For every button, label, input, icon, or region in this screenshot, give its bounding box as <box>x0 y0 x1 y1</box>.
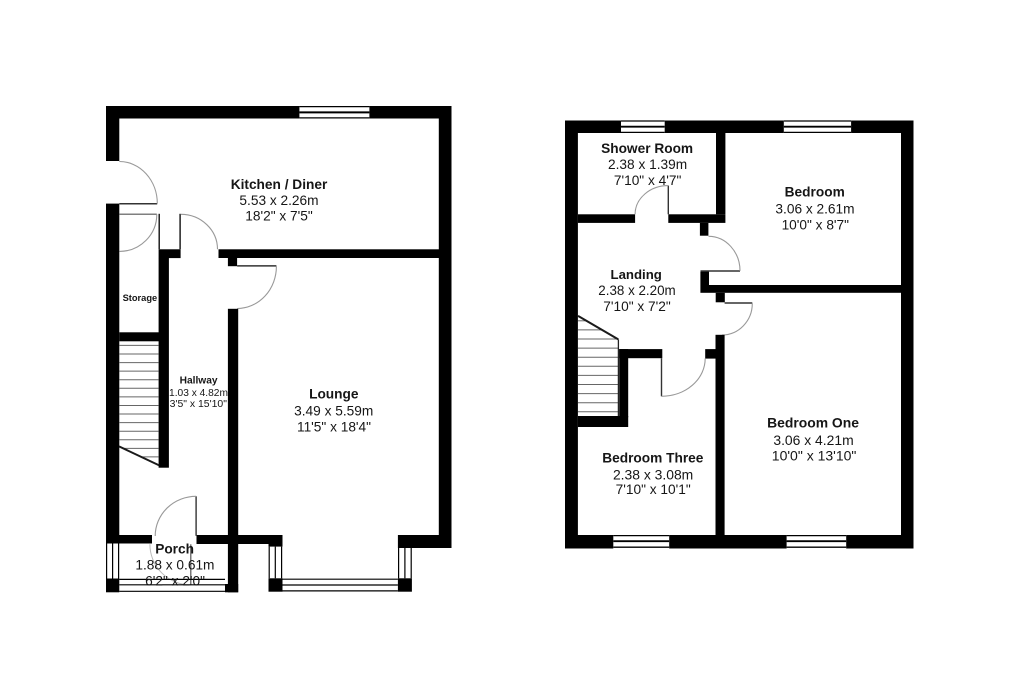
svg-text:10'0" x 8'7": 10'0" x 8'7" <box>782 217 850 232</box>
svg-text:2.38 x 1.39m: 2.38 x 1.39m <box>608 157 687 172</box>
svg-text:1.03 x 4.82m: 1.03 x 4.82m <box>169 388 228 399</box>
svg-text:Shower Room: Shower Room <box>601 141 693 156</box>
svg-text:2.38 x 3.08m: 2.38 x 3.08m <box>613 467 693 483</box>
svg-text:Porch: Porch <box>155 542 194 557</box>
svg-text:Hallway: Hallway <box>180 376 218 387</box>
svg-text:Bedroom Three: Bedroom Three <box>602 451 704 466</box>
svg-text:3.06 x 4.21m: 3.06 x 4.21m <box>773 432 853 448</box>
svg-text:7'10" x 10'1": 7'10" x 10'1" <box>616 482 691 497</box>
svg-text:Storage: Storage <box>123 293 158 303</box>
svg-text:Bedroom: Bedroom <box>785 185 845 200</box>
svg-text:Bedroom One: Bedroom One <box>767 415 859 431</box>
svg-text:18'2" x 7'5": 18'2" x 7'5" <box>245 209 313 224</box>
svg-text:Lounge: Lounge <box>309 387 359 402</box>
svg-text:11'5" x 18'4": 11'5" x 18'4" <box>297 419 371 434</box>
svg-text:6'2" x 2'0": 6'2" x 2'0" <box>145 574 205 589</box>
svg-text:Kitchen / Diner: Kitchen / Diner <box>231 177 328 192</box>
svg-text:1.88 x 0.61m: 1.88 x 0.61m <box>135 558 214 573</box>
svg-text:7'10" x 7'2": 7'10" x 7'2" <box>603 299 671 314</box>
svg-text:5.53 x 2.26m: 5.53 x 2.26m <box>239 193 318 208</box>
svg-text:Landing: Landing <box>611 267 662 282</box>
svg-text:3.06 x 2.61m: 3.06 x 2.61m <box>775 201 854 216</box>
svg-text:10'0" x 13'10": 10'0" x 13'10" <box>772 447 857 463</box>
svg-text:2.38 x 2.20m: 2.38 x 2.20m <box>598 283 675 298</box>
svg-text:3'5" x 15'10": 3'5" x 15'10" <box>170 399 228 410</box>
svg-text:7'10" x 4'7": 7'10" x 4'7" <box>614 173 682 188</box>
svg-text:3.49 x 5.59m: 3.49 x 5.59m <box>294 403 373 418</box>
